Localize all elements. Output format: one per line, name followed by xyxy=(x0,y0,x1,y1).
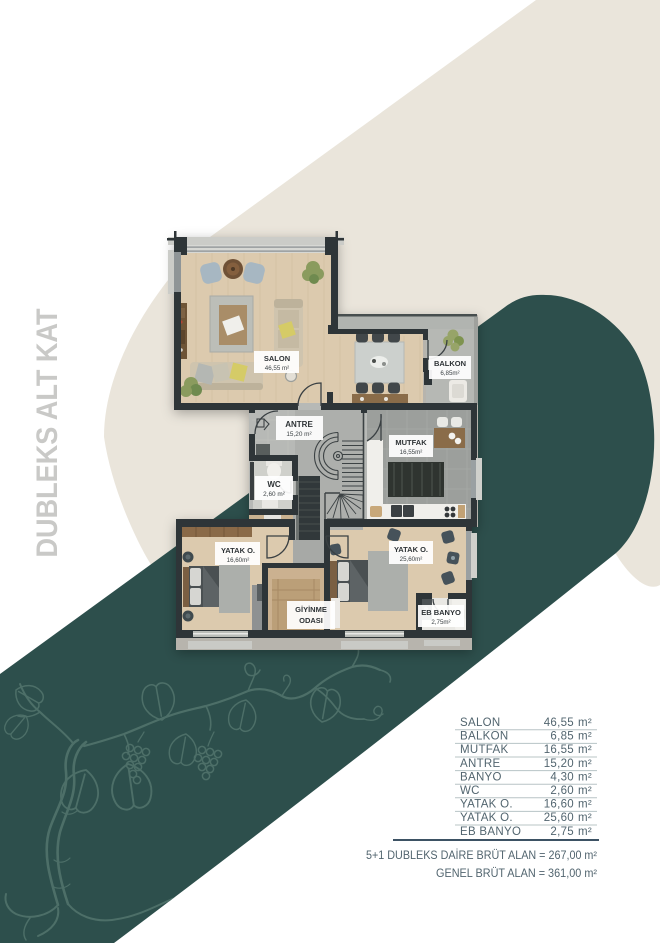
svg-text:m²: m² xyxy=(578,717,592,729)
svg-text:46,55: 46,55 xyxy=(544,717,574,729)
svg-text:m²: m² xyxy=(578,771,592,783)
svg-text:m²: m² xyxy=(578,799,592,811)
svg-text:2,60: 2,60 xyxy=(550,785,574,797)
svg-text:MUTFAK: MUTFAK xyxy=(395,438,427,447)
svg-text:GENEL BRÜT ALAN = 361,00 m²: GENEL BRÜT ALAN = 361,00 m² xyxy=(436,868,597,880)
svg-text:WC: WC xyxy=(267,480,281,489)
svg-text:MUTFAK: MUTFAK xyxy=(460,744,508,756)
svg-text:YATAK O.: YATAK O. xyxy=(460,799,513,811)
svg-text:m²: m² xyxy=(578,785,592,797)
svg-text:6,85m²: 6,85m² xyxy=(440,370,459,377)
svg-text:25,60m²: 25,60m² xyxy=(400,556,423,563)
svg-text:16,55: 16,55 xyxy=(544,744,574,756)
svg-text:16,55m²: 16,55m² xyxy=(400,449,423,456)
svg-text:46,55 m²: 46,55 m² xyxy=(265,365,289,372)
svg-text:m²: m² xyxy=(578,731,592,743)
svg-text:m²: m² xyxy=(578,812,592,824)
svg-text:SALON: SALON xyxy=(264,354,290,363)
svg-text:25,60: 25,60 xyxy=(544,812,574,824)
svg-text:2,75: 2,75 xyxy=(550,826,574,838)
svg-text:15,20: 15,20 xyxy=(544,758,574,770)
svg-text:2,60 m²: 2,60 m² xyxy=(263,491,285,498)
svg-text:ANTRE: ANTRE xyxy=(285,420,313,429)
svg-text:16,60m²: 16,60m² xyxy=(227,557,250,564)
svg-text:m²: m² xyxy=(578,744,592,756)
svg-text:6,85: 6,85 xyxy=(550,731,574,743)
svg-text:YATAK O.: YATAK O. xyxy=(221,546,255,555)
svg-text:4,30: 4,30 xyxy=(550,771,574,783)
svg-text:BANYO: BANYO xyxy=(460,771,502,783)
svg-text:BALKON: BALKON xyxy=(460,731,508,743)
svg-text:GİYİNME: GİYİNME xyxy=(295,605,327,614)
svg-text:m²: m² xyxy=(578,758,592,770)
svg-text:2,75m²: 2,75m² xyxy=(431,619,450,626)
svg-text:BALKON: BALKON xyxy=(434,359,466,368)
svg-text:WC: WC xyxy=(460,785,480,797)
svg-text:EB BANYO: EB BANYO xyxy=(460,826,521,838)
svg-text:DUBLEKS ALT KAT: DUBLEKS ALT KAT xyxy=(31,309,64,558)
svg-text:SALON: SALON xyxy=(460,717,501,729)
svg-text:15,20 m²: 15,20 m² xyxy=(286,431,311,438)
svg-text:YATAK O.: YATAK O. xyxy=(394,545,428,554)
svg-text:YATAK O.: YATAK O. xyxy=(460,812,513,824)
svg-text:EB BANYO: EB BANYO xyxy=(421,608,461,617)
svg-text:5+1 DUBLEKS DAİRE BRÜT ALAN =: 5+1 DUBLEKS DAİRE BRÜT ALAN = 267,00 m² xyxy=(366,849,597,862)
svg-text:ODASI: ODASI xyxy=(299,616,323,625)
svg-text:16,60: 16,60 xyxy=(544,799,574,811)
svg-text:ANTRE: ANTRE xyxy=(460,758,501,770)
svg-text:m²: m² xyxy=(578,826,592,838)
